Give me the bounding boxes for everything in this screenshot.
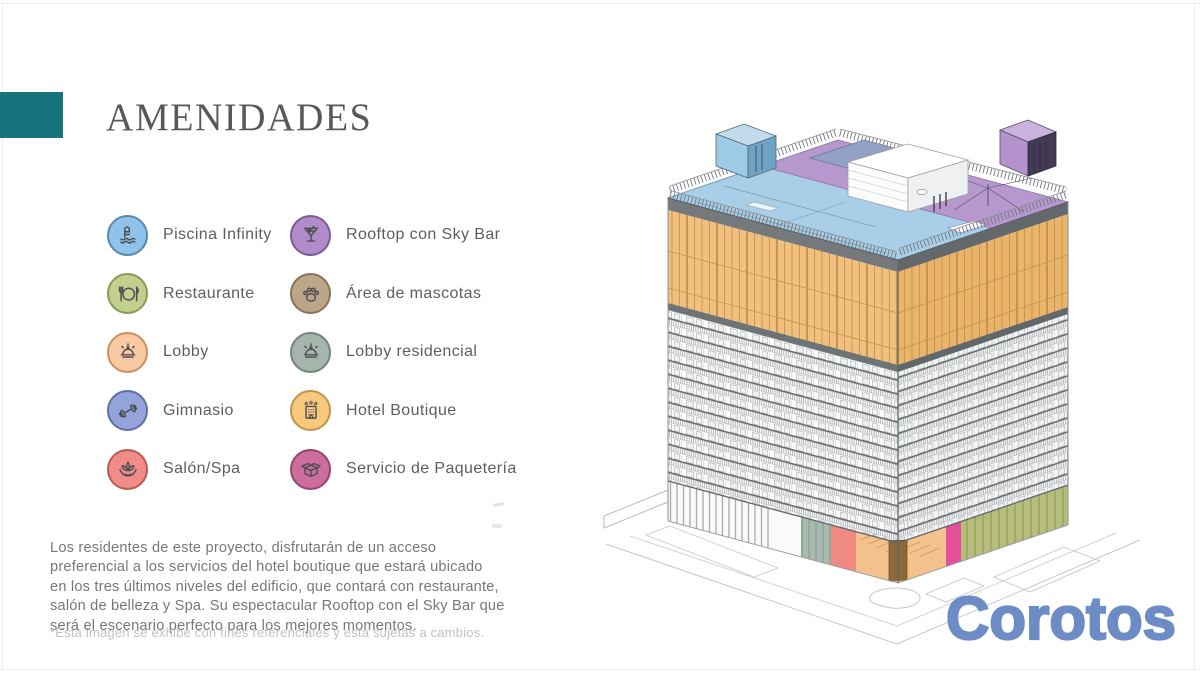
amenity-item: Lobby (107, 323, 272, 382)
paw-icon (290, 273, 331, 314)
disclaimer-text: *Esta imagen se exhibe con fines referen… (50, 625, 484, 640)
restaurant-icon (107, 273, 148, 314)
page-title: AMENIDADES (106, 98, 372, 139)
amenity-label: Gimnasio (163, 402, 234, 420)
amenity-label: Lobby residencial (346, 343, 477, 361)
amenities-column-2: Rooftop con Sky Bar Área de mascotas Lob… (290, 206, 517, 499)
cocktail-icon (290, 215, 331, 256)
amenity-item: Piscina Infinity (107, 206, 272, 265)
teal-accent-block (0, 92, 63, 138)
lotus-icon (107, 449, 148, 490)
package-box-icon (290, 449, 331, 490)
amenity-label: Rooftop con Sky Bar (346, 226, 500, 244)
stray-mark (492, 524, 502, 529)
amenity-label: Piscina Infinity (163, 226, 272, 244)
description-paragraph: Los residentes de este proyecto, disfrut… (50, 539, 505, 636)
amenity-item: Área de mascotas (290, 265, 517, 324)
amenity-item: Rooftop con Sky Bar (290, 206, 517, 265)
amenity-label: Área de mascotas (346, 285, 481, 303)
amenity-item: Gimnasio (107, 382, 272, 441)
service-bell-icon (107, 332, 148, 373)
amenity-label: Salón/Spa (163, 460, 240, 478)
amenities-slide: AMENIDADES (0, 0, 1200, 674)
slide-border-top (0, 3, 1200, 4)
service-bell-icon (290, 332, 331, 373)
amenity-item: Salón/Spa (107, 440, 272, 499)
description-line: salón de belleza y Spa. Su espectacular … (50, 597, 505, 616)
pool-icon (107, 215, 148, 256)
dumbbell-icon (107, 390, 148, 431)
hotel-icon (290, 390, 331, 431)
amenities-column-1: Piscina Infinity Restaurante Lobby Gimna… (107, 206, 272, 499)
amenity-item: Hotel Boutique (290, 382, 517, 441)
amenity-label: Lobby (163, 343, 209, 361)
amenity-label: Restaurante (163, 285, 255, 303)
amenity-label: Hotel Boutique (346, 402, 457, 420)
description-line: en los tres últimos niveles del edificio… (50, 578, 505, 597)
amenity-item: Servicio de Paquetería (290, 440, 517, 499)
watermark: Corotos (946, 584, 1176, 653)
amenity-label: Servicio de Paquetería (346, 460, 517, 478)
description-line: Los residentes de este proyecto, disfrut… (50, 539, 505, 558)
amenity-item: Lobby residencial (290, 323, 517, 382)
stray-mark (493, 502, 504, 507)
description-line: preferencial a los servicios del hotel b… (50, 558, 505, 577)
amenity-item: Restaurante (107, 265, 272, 324)
slide-border-right (1194, 3, 1195, 670)
